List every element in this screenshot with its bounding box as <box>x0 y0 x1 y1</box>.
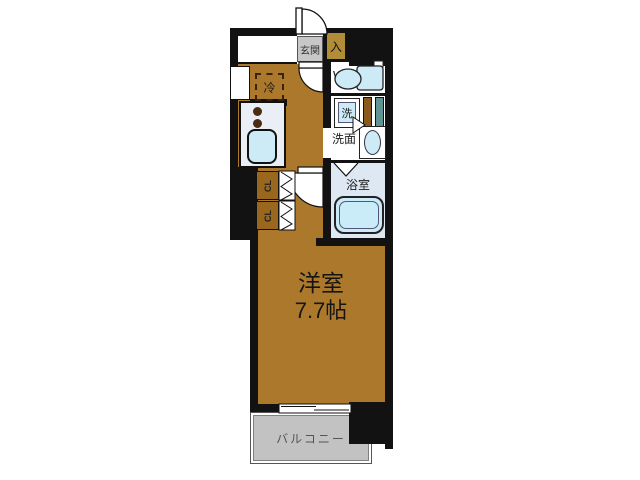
sliding-window <box>279 404 351 413</box>
symbols-overlay <box>0 0 640 480</box>
hall-door-leaf <box>299 62 323 68</box>
washroom-door-fold <box>353 117 365 133</box>
toilet-bowl <box>335 69 361 89</box>
floorplan-canvas: 玄関 バルコニー 入 冷 CL CL <box>0 0 640 480</box>
entrance-door-swing <box>302 9 327 34</box>
main-room-door-leaf <box>298 167 323 173</box>
bathroom-door-fold <box>334 163 358 176</box>
entrance-door-leaf <box>296 8 302 34</box>
hall-door-swing <box>299 68 323 92</box>
